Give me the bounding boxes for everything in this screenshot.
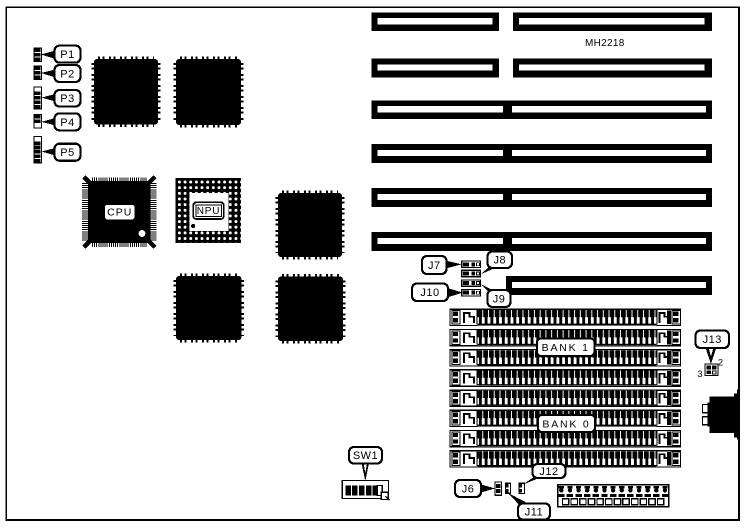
svg-text:MH2218: MH2218 (585, 38, 625, 49)
svg-text:J11: J11 (525, 506, 543, 518)
svg-text:SW1: SW1 (353, 450, 378, 462)
svg-text:P2: P2 (60, 68, 74, 80)
svg-text:2: 2 (718, 358, 723, 368)
svg-text:J10: J10 (420, 287, 439, 299)
svg-text:NPU: NPU (197, 206, 221, 217)
svg-text:BANK 0: BANK 0 (542, 418, 590, 430)
svg-text:P3: P3 (60, 93, 74, 105)
svg-text:J7: J7 (428, 260, 441, 272)
svg-text:J8: J8 (493, 255, 506, 267)
svg-text:J6: J6 (462, 483, 475, 495)
svg-text:P1: P1 (60, 49, 74, 61)
svg-text:J12: J12 (539, 466, 558, 478)
svg-text:CPU: CPU (107, 207, 132, 219)
svg-text:P4: P4 (60, 117, 74, 129)
svg-text:P5: P5 (60, 147, 74, 159)
svg-text:3: 3 (698, 369, 703, 379)
svg-text:J9: J9 (493, 293, 506, 305)
svg-text:J13: J13 (703, 334, 722, 346)
svg-text:BANK 1: BANK 1 (542, 342, 590, 354)
